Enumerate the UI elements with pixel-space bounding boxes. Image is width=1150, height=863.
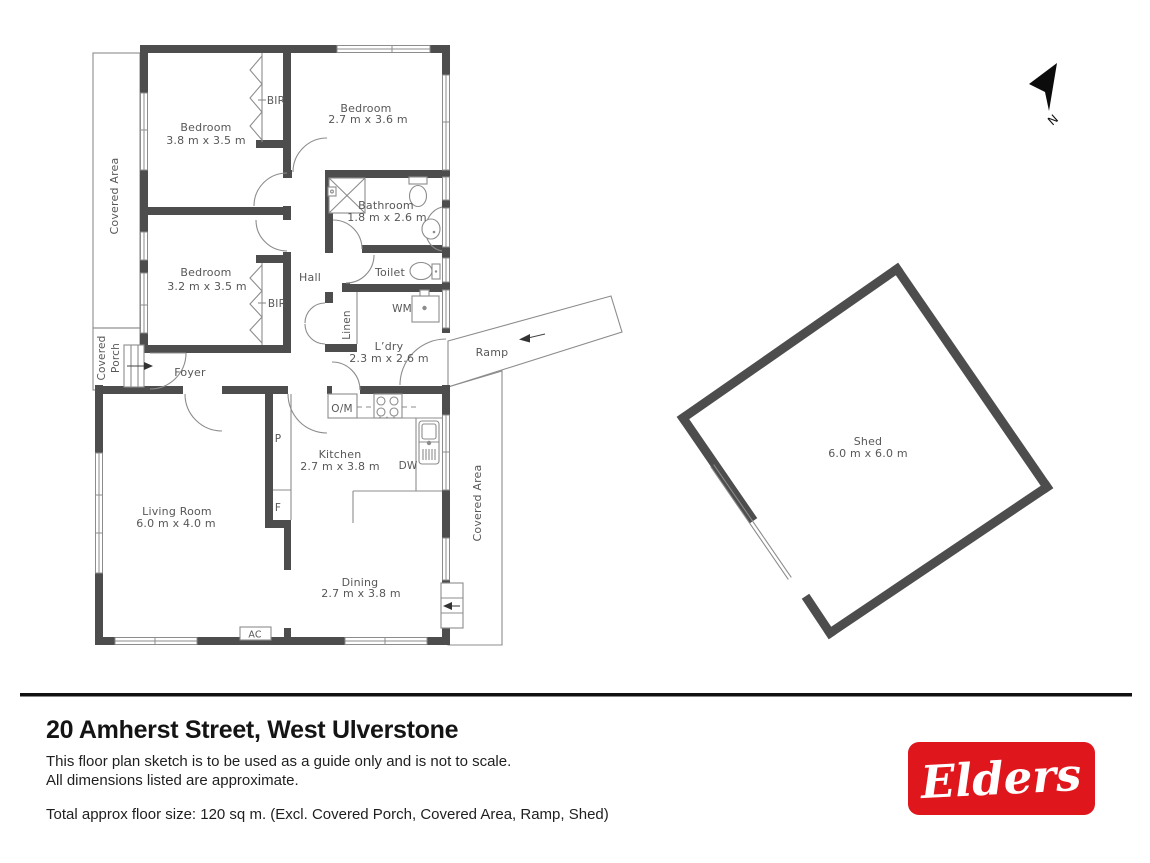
laundry-dims: 2.3 m x 2.6 m — [349, 352, 429, 365]
address-title: 20 Amherst Street, West Ulverstone — [46, 716, 459, 744]
linen-door-swing-2 — [305, 324, 325, 344]
window — [443, 258, 450, 282]
brand-logo-text: Elders — [917, 748, 1082, 809]
covered-porch-label-2: Porch — [110, 343, 122, 373]
linen-door-swing — [305, 303, 325, 323]
window — [443, 538, 450, 580]
rear-steps — [441, 583, 463, 628]
window — [96, 453, 103, 573]
window — [141, 93, 148, 170]
north-label: N — [1045, 112, 1061, 128]
toilet-label: Toilet — [374, 266, 405, 279]
ac-label: AC — [248, 630, 262, 641]
window — [443, 75, 450, 170]
linen-label: Linen — [341, 310, 353, 340]
bir2-label: BIR — [268, 298, 286, 310]
om-label: O/M — [331, 403, 352, 415]
bedroom2-dims: 2.7 m x 3.6 m — [328, 113, 408, 126]
disclaimer-line-2: All dimensions listed are approximate. — [46, 772, 299, 789]
footer: 20 Amherst Street, West Ulverstone This … — [20, 693, 1132, 823]
bedroom2-door-swing — [293, 138, 327, 172]
kitchen-dims: 2.7 m x 3.8 m — [300, 460, 380, 473]
living-dims: 6.0 m x 4.0 m — [136, 517, 216, 530]
cooktop — [374, 394, 402, 418]
bedroom1-dims: 3.8 m x 3.5 m — [166, 134, 246, 147]
hall-label: Hall — [299, 271, 321, 284]
bedroom1-door-swing — [254, 173, 287, 206]
laundry-door-swing — [332, 362, 360, 390]
shed-dims: 6.0 m x 6.0 m — [828, 447, 908, 460]
ramp-outline — [448, 296, 622, 387]
covered-area-right-label: Covered Area — [471, 465, 484, 542]
north-arrow: N — [1029, 63, 1061, 128]
dw-label: DW — [399, 460, 418, 472]
bir2-bifold-doors — [250, 265, 262, 343]
fridge-label: F — [275, 502, 281, 514]
toilet-door-swing — [346, 255, 374, 283]
window — [443, 177, 450, 200]
window — [443, 415, 450, 490]
disclaimer-line-1: This floor plan sketch is to be used as … — [46, 753, 511, 770]
window — [141, 273, 148, 333]
bathroom-door-swing — [333, 220, 362, 249]
pantry-label: P — [275, 433, 282, 445]
ramp-label: Ramp — [476, 346, 509, 359]
covered-porch-label-1: Covered — [96, 335, 108, 380]
bedroom3-dims: 3.2 m x 3.5 m — [167, 280, 247, 293]
bir1-bifold-doors — [250, 56, 262, 140]
foyer-label: Foyer — [174, 366, 206, 379]
bir1-label: BIR — [267, 95, 285, 107]
brand-logo: Elders — [908, 742, 1095, 815]
covered-area-left-label: Covered Area — [108, 158, 121, 235]
window — [443, 290, 450, 328]
kitchen-sink — [419, 421, 439, 464]
window — [337, 46, 430, 53]
wm-label: WM — [392, 303, 412, 315]
window — [115, 638, 197, 645]
wc-toilet — [410, 263, 440, 280]
kitchen-door-swing — [288, 394, 327, 433]
total-floor-size: Total approx floor size: 120 sq m. (Excl… — [46, 806, 609, 823]
dining-dims: 2.7 m x 3.8 m — [321, 587, 401, 600]
north-arrow-icon — [1029, 63, 1057, 111]
window — [141, 232, 148, 260]
bedroom3-label: Bedroom — [180, 266, 231, 279]
bathroom-dims: 1.8 m x 2.6 m — [347, 211, 427, 224]
window — [443, 208, 450, 247]
window — [345, 638, 427, 645]
separator-rule — [20, 693, 1132, 697]
washing-machine — [412, 290, 439, 322]
bedroom1-label: Bedroom — [180, 121, 231, 134]
floor-plan-sheet: N Bedroom 3.8 m x 3.5 m Bedroom 2.7 m x … — [0, 0, 1150, 863]
bedroom3-door-swing — [256, 220, 287, 251]
living-door-swing — [185, 394, 222, 431]
